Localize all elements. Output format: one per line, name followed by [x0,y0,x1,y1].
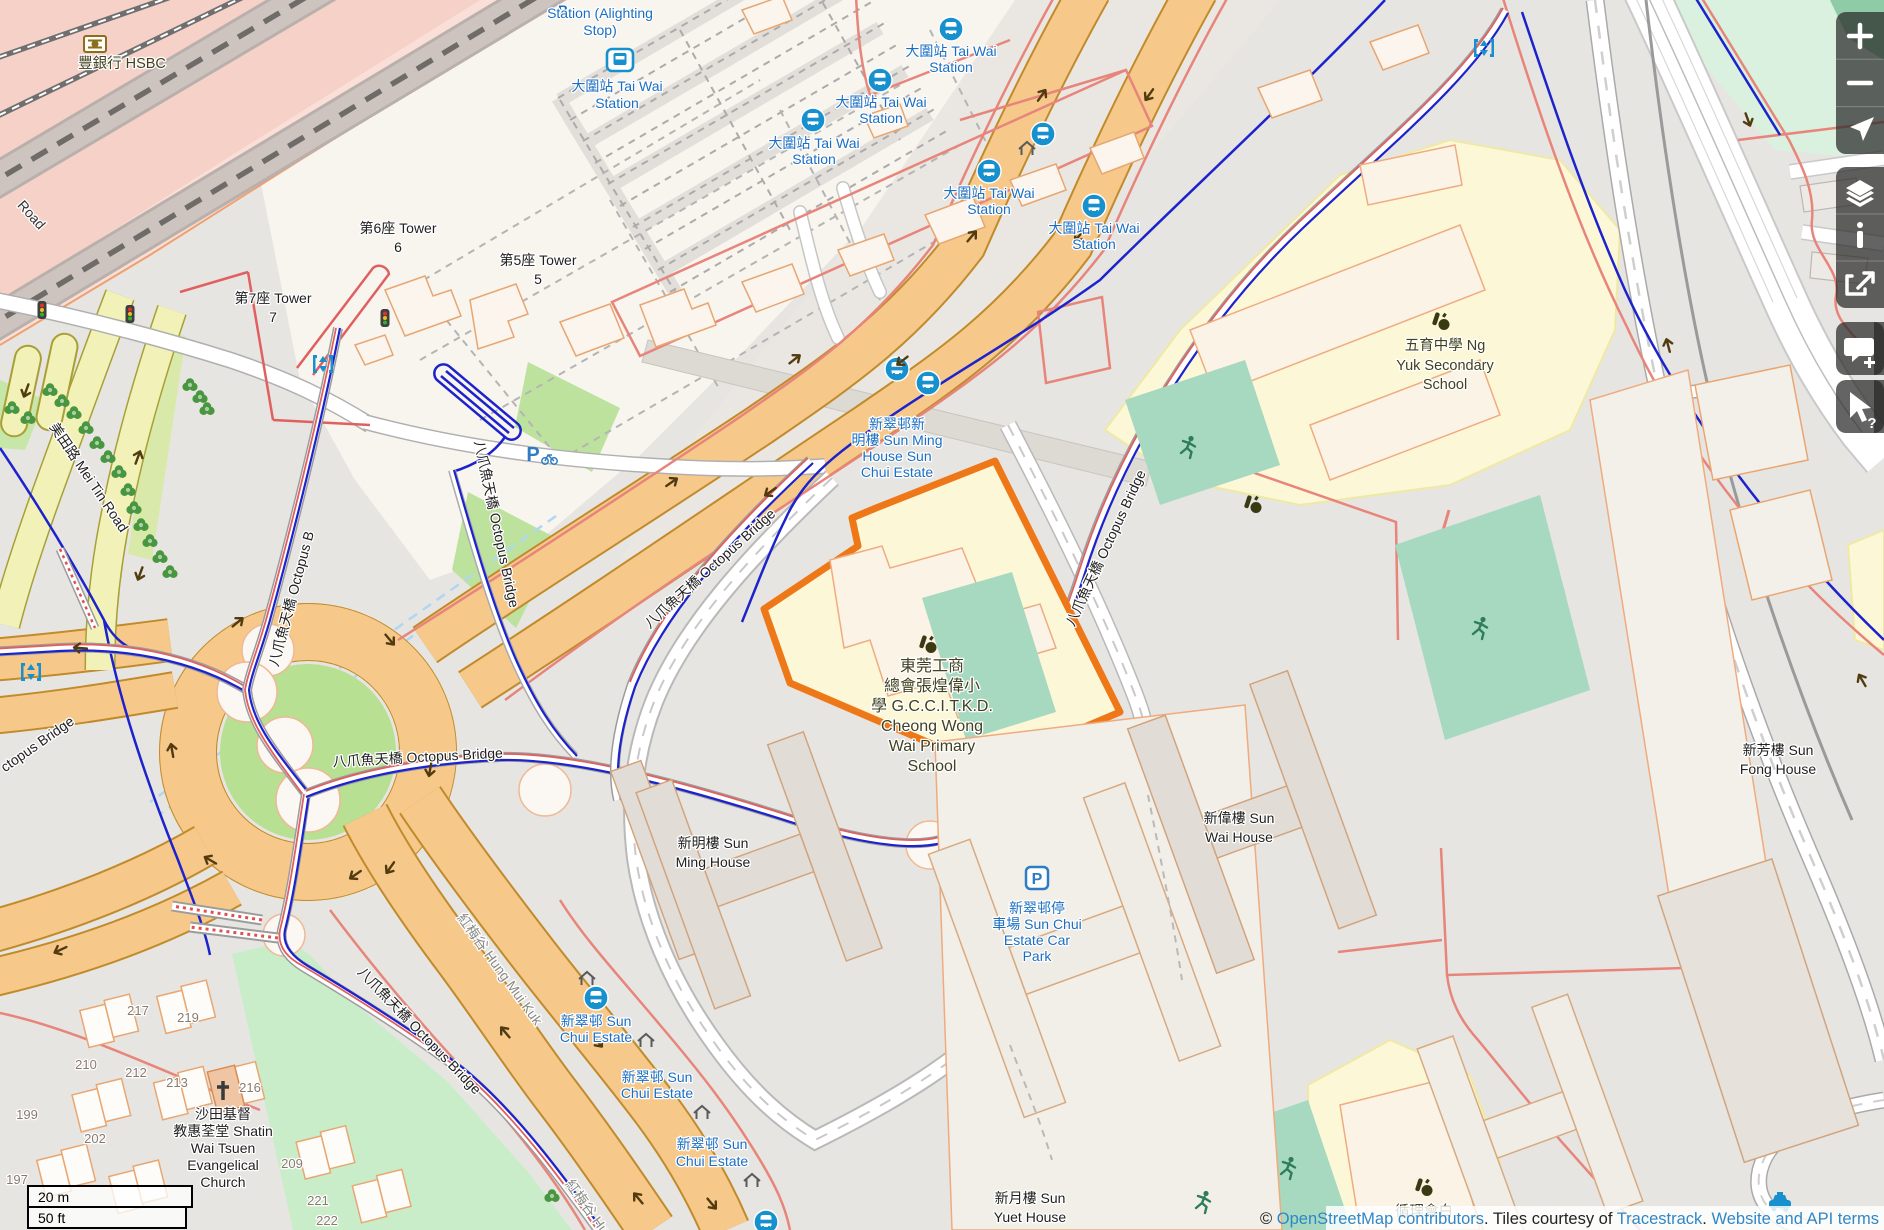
svg-text:新偉樓 Sun: 新偉樓 Sun [1204,810,1275,826]
svg-text:Station: Station [1072,236,1116,252]
svg-text:© OpenStreetMap contributors.: © OpenStreetMap contributors. Tiles cour… [1260,1210,1879,1228]
svg-text:第5座 Tower: 第5座 Tower [499,252,576,268]
svg-text:222: 222 [316,1213,338,1228]
svg-text:Chui Estate: Chui Estate [560,1029,633,1045]
svg-text:221: 221 [307,1193,329,1208]
svg-text:213: 213 [166,1075,188,1090]
svg-text:大圍站 Tai Wai: 大圍站 Tai Wai [1048,220,1139,236]
svg-text:大圍站 Tai Wai: 大圍站 Tai Wai [905,43,996,59]
svg-text:House Sun: House Sun [862,448,931,464]
svg-text:Station: Station [929,59,973,75]
svg-text:Wai House: Wai House [1205,829,1273,845]
svg-text:?: ? [1867,415,1876,432]
svg-text:新月樓 Sun: 新月樓 Sun [995,1190,1066,1206]
svg-text:School: School [908,758,957,775]
svg-text:202: 202 [84,1131,106,1146]
svg-text:Yuk Secondary: Yuk Secondary [1396,358,1494,374]
svg-text:6: 6 [394,239,402,255]
svg-text:7: 7 [269,309,277,325]
svg-text:第7座 Tower: 第7座 Tower [234,290,311,306]
svg-text:School: School [1423,377,1467,393]
svg-text:20 m: 20 m [38,1189,69,1205]
svg-text:大圍站 Tai Wai: 大圍站 Tai Wai [835,94,926,110]
svg-text:學 G.C.C.I.T.K.D.: 學 G.C.C.I.T.K.D. [871,697,993,715]
svg-text:大圍站 Tai Wai: 大圍站 Tai Wai [768,135,859,151]
svg-text:大圍站 Tai Wai: 大圍站 Tai Wai [571,78,662,94]
svg-text:Evangelical: Evangelical [187,1157,259,1173]
svg-text:Church: Church [200,1174,245,1190]
svg-text:教惠荃堂 Shatin: 教惠荃堂 Shatin [173,1123,273,1139]
svg-text:Yuet House: Yuet House [994,1209,1067,1225]
svg-text:Estate Car: Estate Car [1004,932,1070,948]
svg-text:Fong House: Fong House [1740,761,1816,777]
svg-text:Stop): Stop) [583,22,616,38]
svg-text:新明樓 Sun: 新明樓 Sun [678,835,749,851]
svg-text:Station (Alighting: Station (Alighting [547,5,653,21]
svg-text:197: 197 [6,1172,28,1187]
svg-text:Station: Station [792,151,836,167]
svg-text:Park: Park [1023,948,1053,964]
svg-text:5: 5 [534,271,542,287]
svg-text:新翠邨停: 新翠邨停 [1009,900,1065,916]
svg-text:五育中學 Ng: 五育中學 Ng [1405,336,1486,354]
svg-text:209: 209 [281,1156,303,1171]
svg-text:Wai Tsuen: Wai Tsuen [191,1140,256,1156]
svg-text:新芳樓 Sun: 新芳樓 Sun [1743,742,1814,758]
svg-text:新翠邨 Sun: 新翠邨 Sun [622,1069,693,1085]
svg-text:Chui Estate: Chui Estate [861,464,934,480]
svg-text:217: 217 [127,1003,149,1018]
svg-text:Chui Estate: Chui Estate [676,1153,749,1169]
svg-text:Cheong Wong: Cheong Wong [881,718,983,735]
svg-text:Wai Primary: Wai Primary [889,738,976,755]
svg-text:大圍站 Tai Wai: 大圍站 Tai Wai [943,185,1034,201]
svg-text:216: 216 [239,1080,261,1095]
svg-text:Station: Station [595,95,639,111]
svg-text:明樓 Sun Ming: 明樓 Sun Ming [851,432,942,448]
svg-text:Station: Station [967,201,1011,217]
svg-text:Station: Station [859,110,903,126]
svg-text:豐銀行 HSBC: 豐銀行 HSBC [78,55,166,72]
svg-text:219: 219 [177,1010,199,1025]
svg-text:212: 212 [125,1065,147,1080]
svg-text:第6座 Tower: 第6座 Tower [359,220,436,236]
svg-text:總會張煌偉小: 總會張煌偉小 [884,677,980,695]
svg-text:車場 Sun Chui: 車場 Sun Chui [992,916,1081,932]
svg-text:199: 199 [16,1107,38,1122]
svg-text:新翠邨 Sun: 新翠邨 Sun [561,1013,632,1029]
svg-text:210: 210 [75,1057,97,1072]
svg-text:Chui Estate: Chui Estate [621,1085,694,1101]
svg-text:東莞工商: 東莞工商 [900,657,964,675]
svg-text:新翠邨 Sun: 新翠邨 Sun [677,1136,748,1152]
svg-text:50 ft: 50 ft [38,1210,65,1226]
svg-text:Ming House: Ming House [676,854,751,870]
svg-text:沙田基督: 沙田基督 [195,1106,251,1122]
svg-text:新翠邨新: 新翠邨新 [869,416,925,432]
svg-text:P: P [526,444,539,466]
